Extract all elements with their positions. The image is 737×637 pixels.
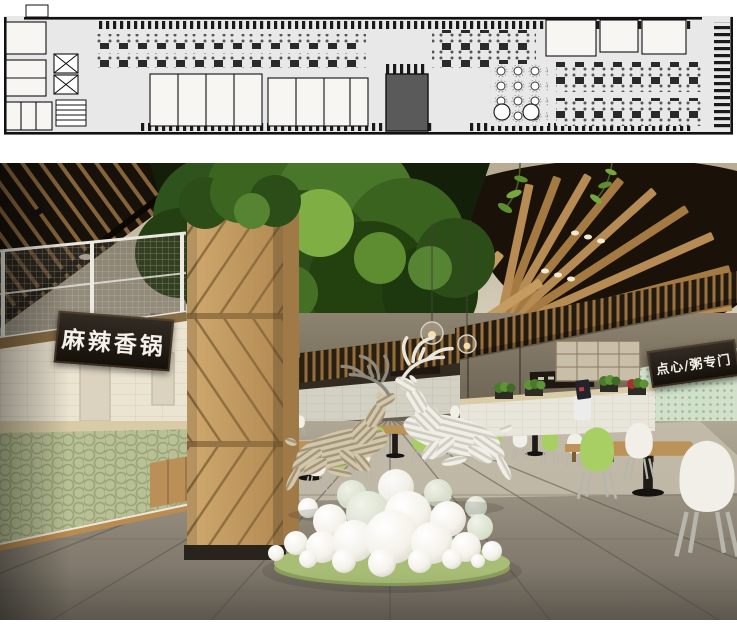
floor-plan-section	[0, 4, 737, 137]
wood-chevron-column	[179, 163, 301, 560]
stall-sign-dimsum-congee-text: 点心/粥专门	[655, 349, 733, 378]
door	[80, 359, 110, 421]
plan-service-rooms	[6, 22, 52, 130]
shelf-cabinet	[556, 341, 640, 381]
plan-stairs-icon	[56, 100, 86, 126]
plan-feature-column-block	[386, 64, 428, 131]
stall-sign-mala-xiangguo-text: 麻辣香锅	[61, 320, 168, 362]
pos-terminal	[574, 379, 591, 420]
stall-sign-mala-xiangguo: 麻辣香锅	[54, 311, 175, 372]
floor-plan-image	[0, 4, 737, 137]
interior-render-section: 麻辣香锅 点心/粥专门	[0, 163, 737, 620]
design-presentation-page: 麻辣香锅 点心/粥专门	[0, 0, 737, 637]
interior-render-image	[0, 163, 737, 620]
